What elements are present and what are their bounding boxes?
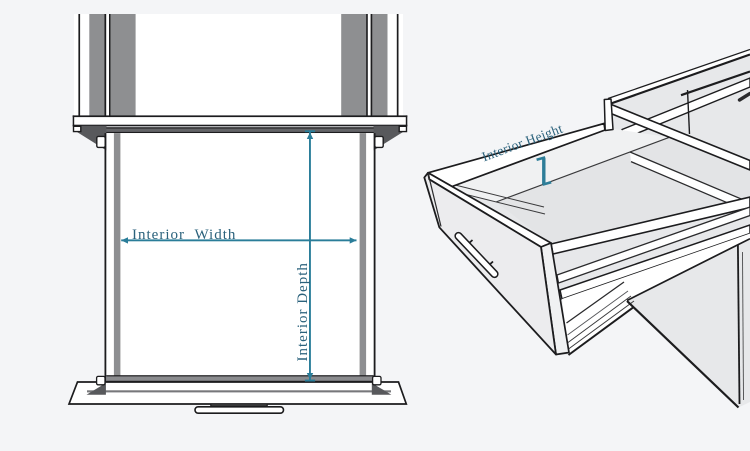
svg-text:Interior Width: Interior Width: [132, 227, 236, 243]
svg-text:Interior Depth: Interior Depth: [295, 262, 311, 361]
